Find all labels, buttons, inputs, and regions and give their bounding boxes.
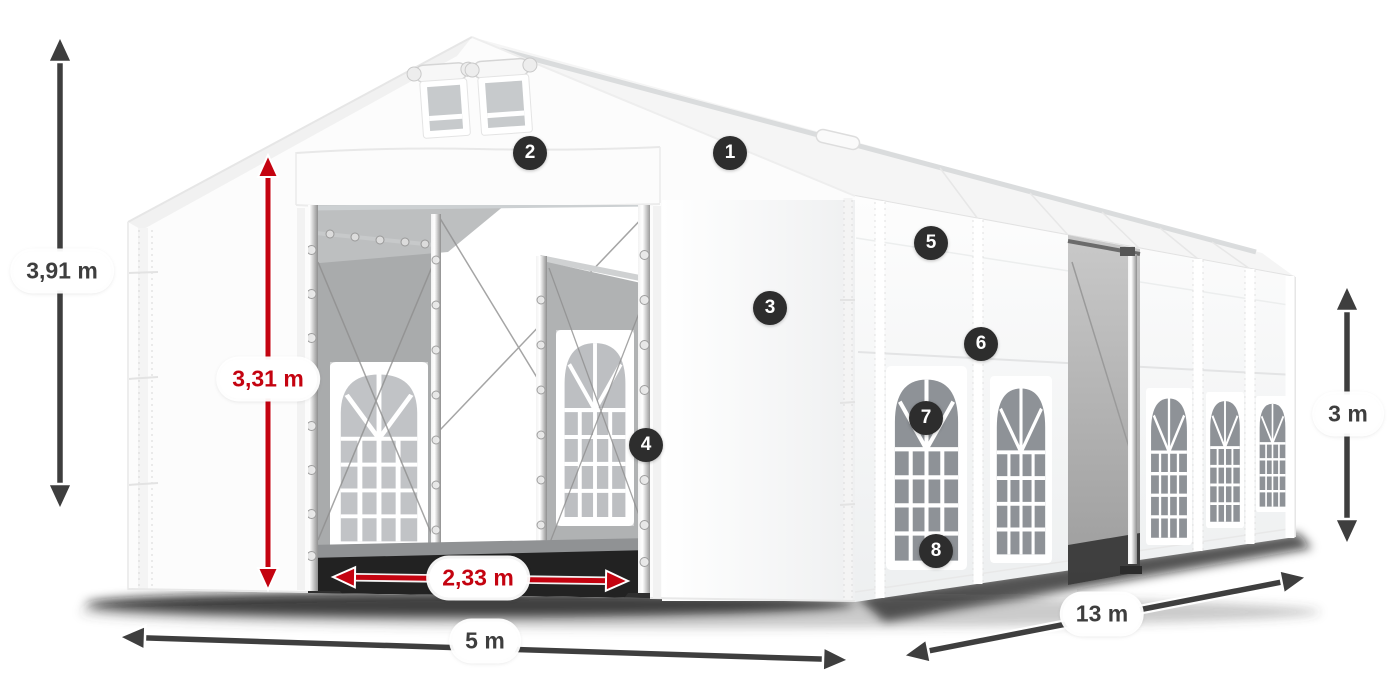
- feature-marker-3: 3: [753, 291, 787, 325]
- dim-label-side-height: 3 m: [1315, 395, 1381, 434]
- dim-label-front-width: 5 m: [452, 622, 518, 661]
- open-side-bay: [1068, 235, 1142, 585]
- feature-marker-5: 5: [914, 226, 948, 260]
- feature-marker-7: 7: [909, 401, 943, 435]
- feature-marker-6: 6: [964, 327, 998, 361]
- feature-marker-4: 4: [629, 428, 663, 462]
- tent-illustration: [0, 0, 1400, 700]
- feature-marker-8: 8: [919, 534, 953, 568]
- tent-dimension-diagram: 3,91 m 3,31 m 2,33 m 5 m 13 m 3 m 1 2 3 …: [0, 0, 1400, 700]
- dim-label-entrance-width: 2,33 m: [429, 559, 527, 598]
- dim-label-entrance-height: 3,31 m: [219, 360, 317, 399]
- dim-label-side-length: 13 m: [1063, 595, 1141, 634]
- rear-window: [330, 362, 428, 550]
- dim-label-total-height: 3,91 m: [13, 252, 111, 291]
- side-window: [1146, 388, 1192, 545]
- side-window: [990, 376, 1052, 563]
- front-right-wall: [662, 200, 855, 601]
- feature-marker-2: 2: [513, 136, 547, 170]
- side-door-pole: [1128, 254, 1137, 564]
- side-window: [1256, 396, 1289, 512]
- entrance-opening: [290, 200, 678, 605]
- feature-marker-1: 1: [713, 136, 747, 170]
- side-window: [1206, 392, 1244, 528]
